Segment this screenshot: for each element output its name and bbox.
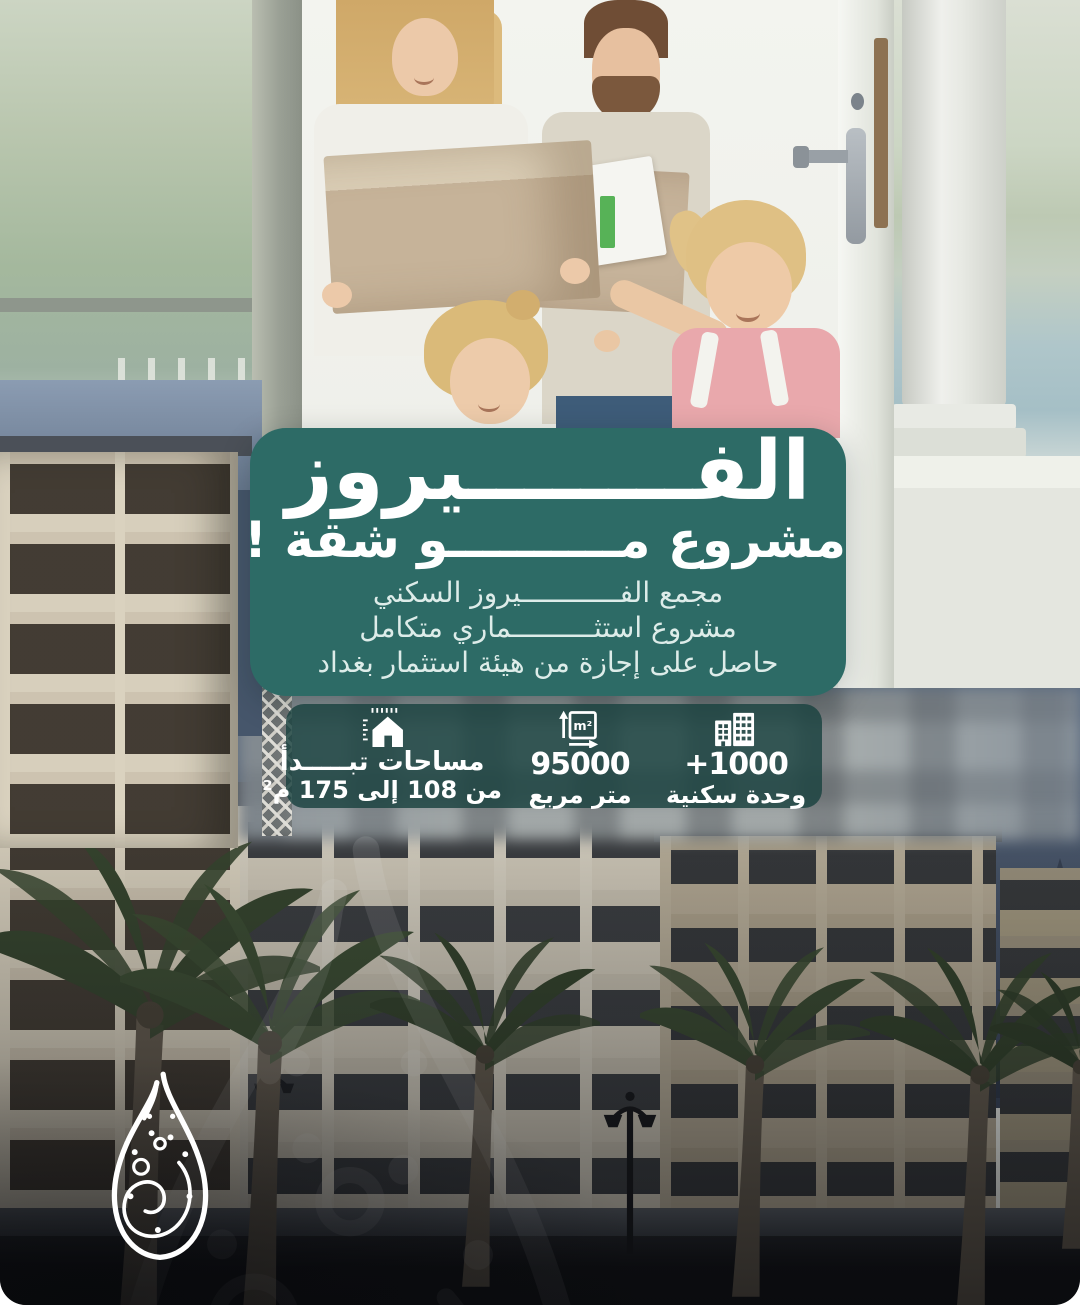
column-pedestal (882, 428, 1026, 458)
window-rail (0, 298, 252, 312)
description-line-2: مشروع استثــــــــــماري متكامل (250, 610, 846, 645)
al-fayrouz-calligraphy-logo (96, 1070, 224, 1270)
project-title: الفــــــــيروز (250, 430, 846, 514)
area-label: متر مربع (528, 782, 631, 808)
door-keyhole (851, 93, 864, 110)
door-handle-knob (793, 146, 809, 168)
units-label: وحدة سكنية (666, 782, 806, 808)
buildings-icon (713, 710, 759, 748)
child-one-smile (478, 396, 500, 412)
area-value: 95000 (530, 749, 629, 781)
description-line-1: مجمع الفــــــــــــيروز السكني (250, 575, 846, 610)
door-lock-strip (874, 38, 888, 228)
child-one-hair-bun (506, 290, 540, 320)
door-lock-plate (846, 128, 866, 244)
area-m2-icon: m² (559, 710, 601, 748)
mother-hand (322, 282, 352, 308)
project-slogan: مشروع مــــــــــو شقة !! (250, 514, 846, 567)
cardboard-box-mother (323, 140, 600, 314)
stat-unit-sizes: مساحات تبـــــدأ من 108 إلى 175 م² (262, 710, 502, 802)
porch-column (902, 0, 1006, 408)
info-card: الفــــــــيروز مشروع مــــــــــو شقة !… (250, 428, 846, 696)
green-label (600, 196, 615, 248)
svg-text:m²: m² (573, 718, 592, 733)
mother-hand (560, 258, 590, 284)
sizes-label: من 108 إلى 175 م² (262, 777, 502, 803)
units-count: +1000 (684, 749, 788, 781)
sizes-value: مساحات تبـــــدأ (280, 749, 485, 776)
child-two-hand (594, 330, 620, 352)
stats-band: +1000 وحدة سكنية m² 95000 متر مربع (286, 704, 822, 808)
house-measure-icon (360, 710, 404, 748)
left-building-balconies (0, 452, 238, 848)
child-two-smile (736, 304, 760, 322)
description-line-3: حاصل على إجازة من هيئة استثمار بغداد (250, 645, 846, 680)
mother-smile (414, 70, 434, 85)
column-base (892, 404, 1016, 430)
stat-residential-units: +1000 وحدة سكنية (658, 710, 814, 802)
poster: الفــــــــيروز مشروع مــــــــــو شقة !… (0, 0, 1080, 1305)
project-description: مجمع الفــــــــــــيروز السكني مشروع اس… (250, 575, 846, 681)
stat-total-area: m² 95000 متر مربع (502, 710, 658, 802)
